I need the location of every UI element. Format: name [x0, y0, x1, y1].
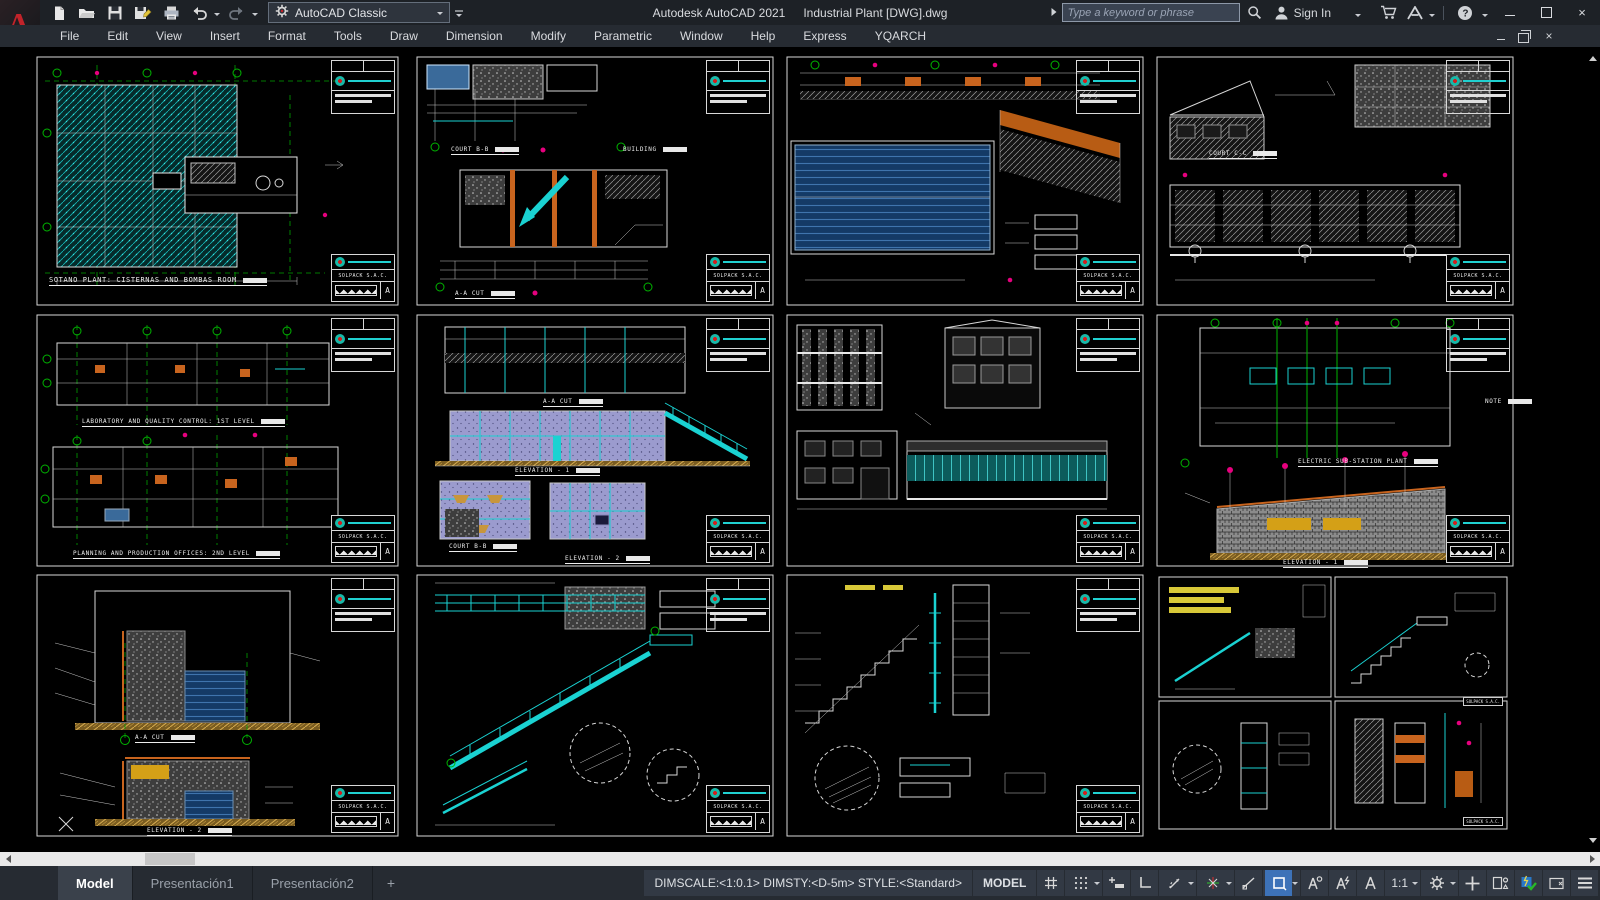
sheet-drawing: [1155, 573, 1515, 838]
toolbar-overflow-icon[interactable]: [450, 1, 468, 24]
plan-label: LABORATORY AND QUALITY CONTROL: 1ST LEVE…: [82, 419, 285, 427]
sheet-titleblock-bottom: SOLPACK S.A.C.A: [706, 254, 770, 302]
autodesk-caret-icon[interactable]: [1429, 14, 1435, 20]
drawing-canvas[interactable]: SOTANO PLANT: CISTERNAS AND BOMBAS ROOM …: [0, 47, 1600, 852]
quick-properties-icon[interactable]: [1487, 870, 1514, 896]
tab-presentacion1[interactable]: Presentación1: [133, 866, 253, 900]
graphics-performance-icon[interactable]: [1515, 870, 1542, 896]
view-label: ELEVATION - 1: [1283, 560, 1368, 568]
sheet-titleblock-top: [1446, 318, 1510, 372]
sheet-titleblock-top: [706, 60, 770, 114]
undo-dropdown-icon[interactable]: [214, 13, 220, 19]
sheet-titleblock-top: [1076, 60, 1140, 114]
scroll-up-arrow[interactable]: [1587, 53, 1598, 64]
titlebar: A AutoCAD Classic Autodesk AutoCAD 2021 …: [0, 0, 1600, 25]
redo-dropdown-icon[interactable]: [252, 13, 258, 19]
bottom-bar: Model Presentación1 Presentación2 + DIMS…: [0, 866, 1600, 900]
polar-tracking-icon[interactable]: [1161, 870, 1188, 896]
sign-in-label: Sign In: [1294, 6, 1331, 20]
doc-minimize-button[interactable]: [1490, 26, 1512, 46]
snap-mode-icon[interactable]: [1067, 870, 1094, 896]
customization-menu-icon[interactable]: [1571, 870, 1598, 896]
view-label: A-A CUT: [135, 735, 195, 743]
sheet-r2c4: ELECTRIC SUB-STATION PLANT ELEVATION - 1…: [1155, 313, 1515, 568]
workspace-gear-icon: [275, 4, 289, 21]
layout-tabs: Model Presentación1 Presentación2 +: [58, 866, 409, 900]
add-layout-button[interactable]: +: [373, 866, 409, 900]
redo-icon[interactable]: [224, 1, 250, 24]
sign-in-caret-icon[interactable]: [1355, 14, 1361, 20]
menu-parametric[interactable]: Parametric: [580, 25, 666, 47]
doc-restore-button[interactable]: [1514, 26, 1536, 46]
minimize-button[interactable]: [1492, 0, 1528, 25]
workspace-caret-icon[interactable]: [1450, 882, 1456, 888]
object-snap-icon[interactable]: [1265, 870, 1292, 896]
close-button[interactable]: ×: [1564, 0, 1600, 25]
quick-access-toolbar: [46, 1, 260, 24]
plan-label: PLANNING AND PRODUCTION OFFICES: 2ND LEV…: [73, 551, 280, 559]
scroll-right-arrow[interactable]: [1584, 852, 1600, 866]
search-icon[interactable]: [1244, 1, 1266, 24]
sheet-titleblock-top: [1076, 318, 1140, 372]
menu-format[interactable]: Format: [254, 25, 320, 47]
workspace-switch-group: [1421, 870, 1458, 896]
sheet-r3c4: SOLPACK S.A.C. SOLPACK S.A.C.: [1155, 573, 1515, 838]
menu-file[interactable]: File: [46, 25, 93, 47]
scroll-left-arrow[interactable]: [0, 852, 16, 866]
menu-express[interactable]: Express: [789, 25, 860, 47]
svg-text:?: ?: [1462, 8, 1468, 19]
titlebar-divider: [1443, 6, 1444, 20]
sheet-r1c3: SOLPACK S.A.C.A: [785, 55, 1145, 307]
sheet-titleblock-top: [331, 60, 395, 114]
app-title: Autodesk AutoCAD 2021: [653, 6, 786, 20]
object-snap-tracking-group: [1197, 870, 1234, 896]
horizontal-scrollbar[interactable]: [0, 852, 1600, 866]
snap-caret-icon[interactable]: [1094, 882, 1100, 888]
scrollbar-thumb[interactable]: [145, 853, 195, 865]
document-title: Industrial Plant [DWG].dwg: [803, 6, 947, 20]
workspace-gear-icon[interactable]: [1423, 870, 1450, 896]
sheet-r2c3: SOLPACK S.A.C.A: [785, 313, 1145, 568]
polar-tracking-group: [1159, 870, 1196, 896]
view-label: ELEVATION - 2: [565, 556, 650, 564]
osnap-caret-icon[interactable]: [1292, 882, 1298, 888]
sheet-titleblock-top: [706, 578, 770, 632]
mini-titleblock: SOLPACK S.A.C.: [1463, 697, 1503, 706]
help-caret-icon[interactable]: [1482, 14, 1488, 20]
workspace-label: AutoCAD Classic: [295, 6, 431, 20]
menu-modify[interactable]: Modify: [517, 25, 580, 47]
sheet-titleblock-top: [1446, 60, 1510, 114]
view-label: BUILDING: [623, 147, 687, 154]
sheet-r2c1: LABORATORY AND QUALITY CONTROL: 1ST LEVE…: [35, 313, 400, 568]
help-icon[interactable]: ?: [1452, 1, 1478, 24]
object-snap-group: [1263, 870, 1300, 896]
status-bar: DIMSCALE:<1:0.1> DIMSTY:<D-5m> STYLE:<St…: [644, 866, 1598, 900]
annotation-visibility-icon[interactable]: [1301, 870, 1328, 896]
sheet-r2c2: A-A CUT ELEVATION - 1 COURT B-B ELEVATIO…: [415, 313, 775, 568]
app-store-cart-icon[interactable]: [1375, 1, 1401, 24]
view-label: ELEVATION - 2: [147, 828, 232, 836]
revision-letter: A: [380, 282, 394, 299]
autocad-window: A AutoCAD Classic Autodesk AutoCAD 2021 …: [0, 0, 1600, 900]
dynamic-input-icon[interactable]: [1103, 870, 1130, 896]
isometric-drafting-icon[interactable]: [1235, 870, 1262, 896]
sign-in-button[interactable]: Sign In: [1270, 5, 1335, 20]
new-file-icon[interactable]: [46, 1, 72, 24]
maximize-button[interactable]: [1528, 0, 1564, 25]
sheet-r1c4: COURT C-C SOLPACK S.A.C.A: [1155, 55, 1515, 307]
sheet-titleblock-bottom: SOLPACK S.A.C.A: [706, 785, 770, 833]
note-label: NOTE: [1485, 399, 1532, 406]
polar-caret-icon[interactable]: [1188, 882, 1194, 888]
sheet-r3c3: SOLPACK S.A.C.A: [785, 573, 1145, 838]
mini-titleblock: SOLPACK S.A.C.: [1463, 817, 1503, 826]
autodesk-app-icon[interactable]: [1405, 1, 1425, 24]
ortho-mode-icon[interactable]: [1131, 870, 1158, 896]
search-input[interactable]: [1062, 3, 1240, 22]
view-label: COURT B-B: [451, 147, 519, 155]
view-label: A-A CUT: [455, 291, 515, 299]
menu-edit[interactable]: Edit: [93, 25, 142, 47]
search-expand-icon[interactable]: [1050, 6, 1058, 20]
document-window-controls: ×: [1490, 25, 1560, 47]
sheet-titleblock-top: [1076, 578, 1140, 632]
open-folder-icon[interactable]: [74, 1, 100, 24]
window-controls: ×: [1492, 0, 1600, 25]
titlebar-right-tools: Sign In ?: [1050, 0, 1488, 25]
sheet-titleblock-bottom: SOLPACK S.A.C.A: [331, 254, 395, 302]
sheet-titleblock-bottom: SOLPACK S.A.C.A: [706, 515, 770, 563]
workspace-caret-icon: [437, 12, 443, 18]
view-label: COURT B-B: [449, 544, 517, 552]
sheet-titleblock-top: [706, 318, 770, 372]
view-label: ELEVATION - 1: [515, 468, 600, 476]
annotation-scale-icon[interactable]: [1357, 870, 1384, 896]
plot-icon[interactable]: [158, 1, 184, 24]
object-snap-tracking-icon[interactable]: [1199, 870, 1226, 896]
sheet-titleblock-top: [331, 318, 395, 372]
scroll-down-arrow[interactable]: [1587, 835, 1598, 846]
menu-view[interactable]: View: [142, 25, 196, 47]
crosshair-plus-icon[interactable]: [1459, 870, 1486, 896]
user-icon: [1274, 5, 1289, 20]
tab-model[interactable]: Model: [58, 866, 133, 900]
grid-display-icon[interactable]: [1037, 870, 1064, 896]
otrack-caret-icon[interactable]: [1226, 882, 1232, 888]
view-label: A-A CUT: [543, 399, 603, 407]
annotation-scale-value[interactable]: 1:1: [1387, 876, 1412, 890]
sheet-r1c1: SOTANO PLANT: CISTERNAS AND BOMBAS ROOM …: [35, 55, 400, 307]
snap-mode-group: [1065, 870, 1102, 896]
menu-help[interactable]: Help: [737, 25, 790, 47]
sheet-titleblock-bottom: SOLPACK S.A.C.A: [1076, 254, 1140, 302]
sheet-titleblock-bottom: SOLPACK S.A.C.A: [1076, 515, 1140, 563]
save-icon[interactable]: [102, 1, 128, 24]
sheet-titleblock-bottom: SOLPACK S.A.C.A: [1446, 254, 1510, 302]
menu-insert[interactable]: Insert: [196, 25, 254, 47]
view-label: ELECTRIC SUB-STATION PLANT: [1298, 459, 1438, 467]
annotation-autoscale-icon[interactable]: [1329, 870, 1356, 896]
sheet-titleblock-bottom: SOLPACK S.A.C.A: [331, 515, 395, 563]
company-logo-icon: [335, 257, 345, 267]
menu-tools[interactable]: Tools: [320, 25, 376, 47]
sheet-title-label: SOTANO PLANT: CISTERNAS AND BOMBAS ROOM: [49, 277, 267, 286]
doc-close-button[interactable]: ×: [1538, 26, 1560, 46]
company-logo-icon: [335, 76, 345, 86]
menubar: File Edit View Insert Format Tools Draw …: [0, 25, 1600, 48]
clean-screen-icon[interactable]: [1543, 870, 1570, 896]
sheet-titleblock-top: [331, 578, 395, 632]
view-label: COURT C-C: [1209, 151, 1277, 159]
annotation-scale-value-group: 1:1: [1385, 870, 1420, 896]
sheet-r3c1: A-A CUT ELEVATION - 2 SOLPACK S.A.C.A: [35, 573, 400, 838]
dimension-style-readout[interactable]: DIMSCALE:<1:0.1> DIMSTY:<D-5m> STYLE:<St…: [644, 870, 971, 896]
menu-yqarch[interactable]: YQARCH: [861, 25, 940, 47]
company-name: SOLPACK S.A.C.: [332, 270, 394, 282]
menu-draw[interactable]: Draw: [376, 25, 432, 47]
sheet-r1c2: COURT B-B BUILDING A-A CUT SOLPACK S.A.C…: [415, 55, 775, 307]
undo-icon[interactable]: [186, 1, 212, 24]
sheet-r3c2: SOLPACK S.A.C.A: [415, 573, 775, 838]
save-as-icon[interactable]: [130, 1, 156, 24]
sheet-titleblock-bottom: SOLPACK S.A.C.A: [331, 785, 395, 833]
menu-window[interactable]: Window: [666, 25, 737, 47]
tab-presentacion2[interactable]: Presentación2: [253, 866, 373, 900]
workspace-selector[interactable]: AutoCAD Classic: [268, 2, 450, 23]
model-space-button[interactable]: MODEL: [973, 870, 1036, 896]
sheet-titleblock-bottom: SOLPACK S.A.C.A: [1076, 785, 1140, 833]
sheet-titleblock-bottom: SOLPACK S.A.C.A: [1446, 515, 1510, 563]
menu-dimension[interactable]: Dimension: [432, 25, 517, 47]
scale-caret-icon[interactable]: [1412, 882, 1418, 888]
